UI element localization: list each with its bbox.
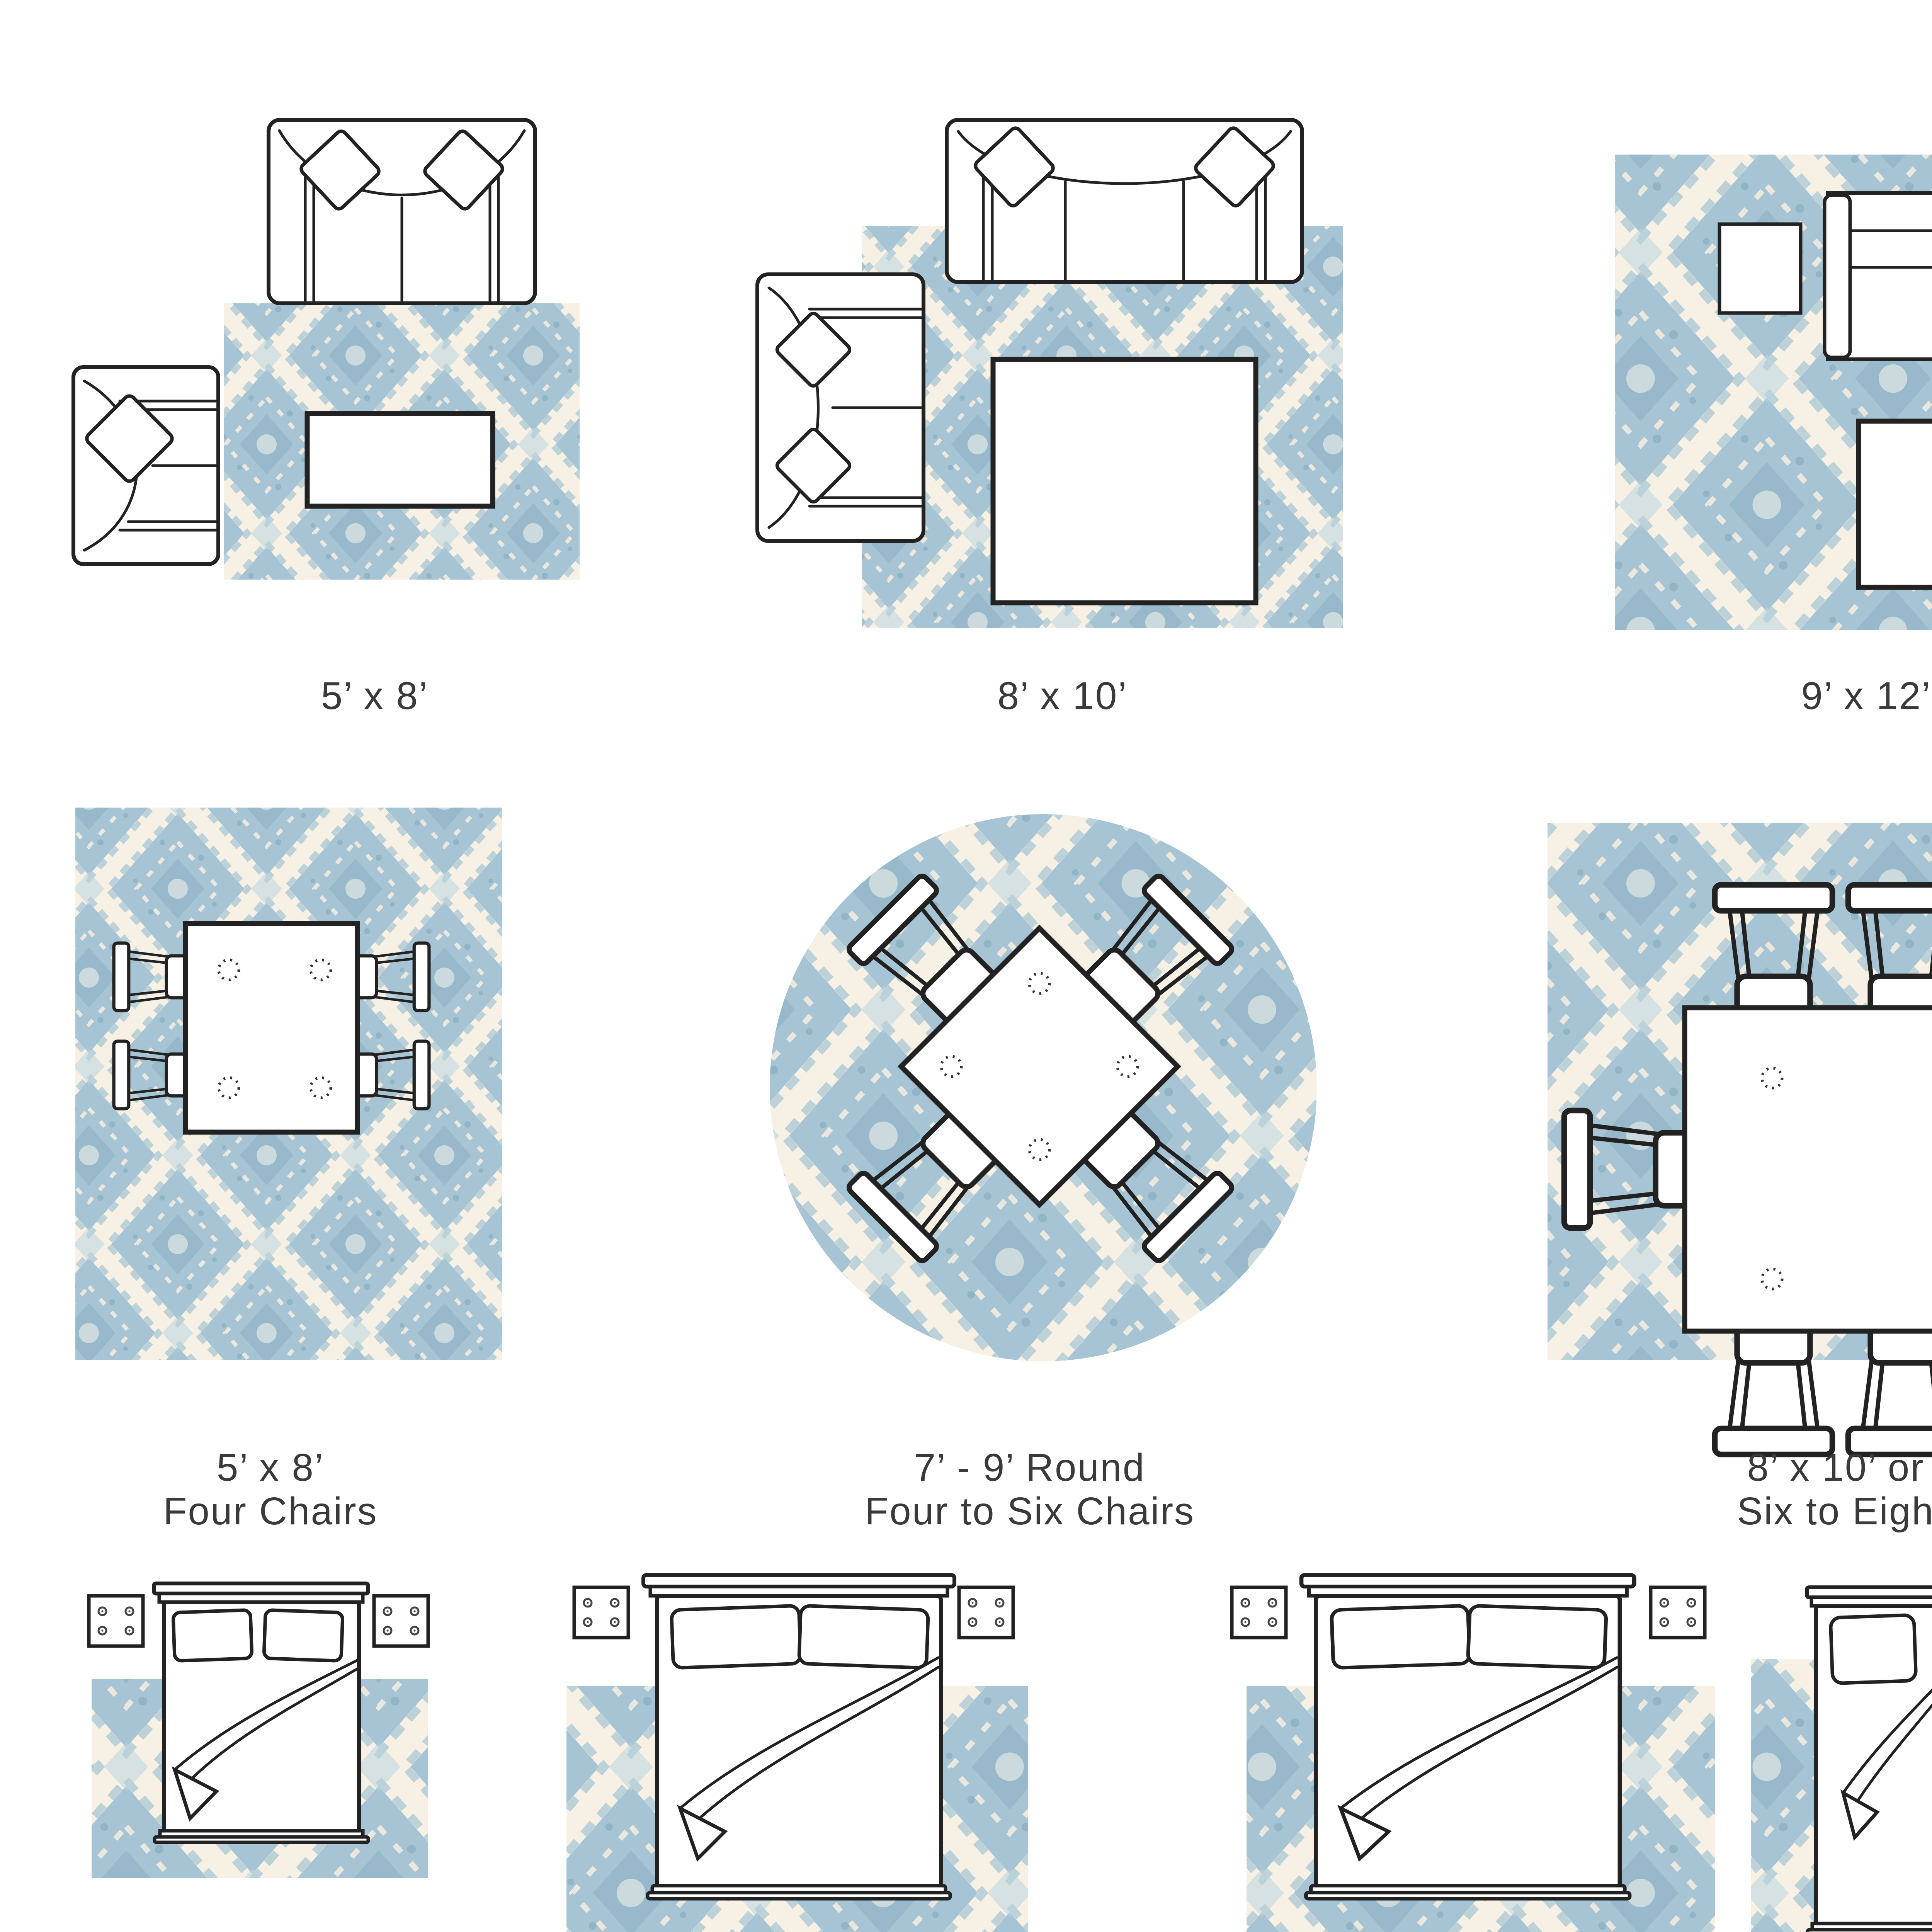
seats-label: Four to Six Chairs: [865, 1490, 1195, 1533]
nightstand: [1232, 1587, 1286, 1638]
sofa-arm: [1825, 195, 1850, 357]
size-label: 8’ x 10’: [997, 674, 1128, 718]
bedroom-twin-group: 9’ x 12’ Twin Bed: [1751, 1587, 1932, 1932]
sofa: [947, 120, 1302, 282]
size-label: 5’ x 8’: [321, 674, 429, 718]
living-8x10-group: 8’ x 10’: [757, 120, 1343, 718]
living-9x12-group: 9’ x 12’: [1615, 155, 1932, 718]
size-label: 8’ x 10’ or 9’ x 12’: [1747, 1446, 1932, 1489]
coffee-table: [307, 413, 493, 506]
nightstand: [574, 1587, 628, 1638]
size-label: 9’ x 12’: [1801, 674, 1931, 718]
nightstand: [374, 1596, 428, 1646]
nightstand: [89, 1596, 143, 1646]
dining-table: [185, 923, 357, 1132]
size-label: 5’ x 8’: [217, 1446, 325, 1489]
nightstand: [1651, 1587, 1705, 1638]
seats-label: Four Chairs: [163, 1490, 378, 1533]
twin-bed: [1807, 1587, 1932, 1932]
loveseat: [757, 274, 923, 541]
bedroom-queen-group: 8’ x 10’ or 9’ x 12’ Queen Size Bed: [566, 1575, 1028, 1932]
nightstand: [959, 1587, 1013, 1638]
bedroom-king-group: 8’ x 10’ or 9’ x 12’ King Size Bed: [1232, 1575, 1715, 1932]
seats-label: Six to Eight Chairs: [1737, 1490, 1932, 1533]
king-size-bed: [1301, 1575, 1634, 1899]
bedroom-full-group: 5’ x 8’ Full Size Bed: [89, 1583, 428, 1932]
full-size-bed: [154, 1583, 368, 1842]
dining-large-group: 8’ x 10’ or 9’ x 12’ Six to Eight Chairs: [1548, 823, 1932, 1533]
coffee-table: [993, 359, 1256, 603]
living-5x8-group: 5’ x 8’: [73, 120, 580, 718]
coffee-table: [1859, 421, 1932, 587]
dining-table: [1685, 1008, 1932, 1331]
armchair: [73, 367, 218, 564]
sofa: [269, 120, 535, 303]
side-table: [1719, 224, 1801, 313]
rug-size-guide-diagram: 5’ x 8’ 8’ x 10’ 9’ x 12’: [0, 0, 1932, 1932]
dining-round-group: 7’ - 9’ Round Four to Six Chairs: [770, 814, 1317, 1533]
dining-5x8-group: 5’ x 8’ Four Chairs: [75, 808, 502, 1533]
size-label: 7’ - 9’ Round: [914, 1446, 1146, 1489]
queen-size-bed: [643, 1575, 954, 1899]
